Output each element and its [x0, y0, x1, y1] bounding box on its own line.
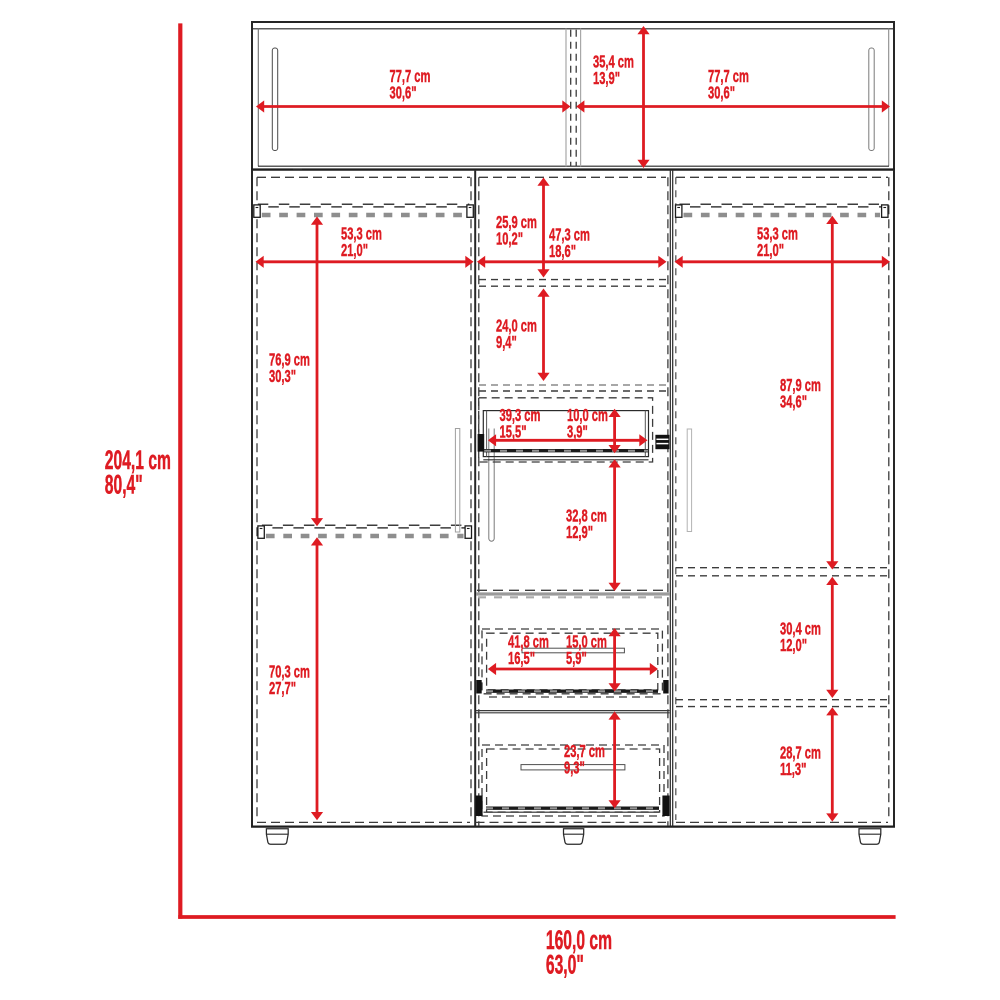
svg-text:30,6": 30,6": [708, 83, 735, 103]
svg-text:16,5": 16,5": [508, 648, 535, 668]
svg-text:10,2": 10,2": [496, 229, 523, 249]
svg-text:9,3": 9,3": [564, 758, 585, 778]
svg-text:30,3": 30,3": [269, 366, 296, 386]
svg-text:13,9": 13,9": [593, 68, 620, 88]
svg-text:18,6": 18,6": [549, 241, 576, 261]
svg-text:30,6": 30,6": [390, 83, 417, 103]
svg-text:63,0": 63,0": [546, 949, 584, 980]
svg-text:12,9": 12,9": [566, 522, 593, 542]
svg-text:27,7": 27,7": [269, 678, 296, 698]
svg-text:15,5": 15,5": [500, 422, 527, 442]
svg-text:5,9": 5,9": [566, 648, 587, 668]
svg-text:11,3": 11,3": [780, 759, 806, 779]
svg-text:80,4": 80,4": [105, 469, 143, 500]
svg-text:12,0": 12,0": [780, 635, 807, 655]
svg-text:9,4": 9,4": [496, 332, 517, 352]
svg-text:21,0": 21,0": [341, 240, 368, 260]
svg-text:3,9": 3,9": [567, 422, 588, 442]
svg-text:21,0": 21,0": [757, 240, 784, 260]
svg-text:34,6": 34,6": [780, 392, 807, 412]
